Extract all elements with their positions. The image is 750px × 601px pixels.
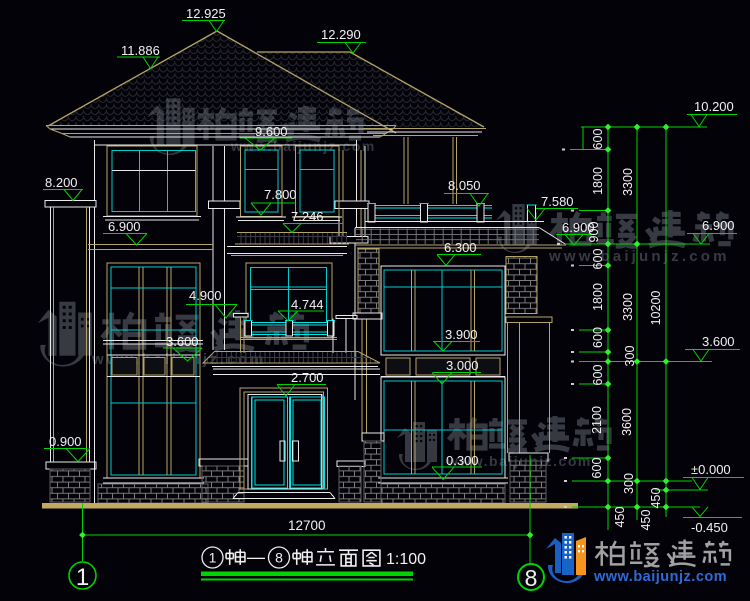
svg-text:7.580: 7.580 [541, 194, 574, 209]
svg-text:7.246: 7.246 [291, 209, 324, 224]
svg-text:600: 600 [591, 365, 605, 386]
svg-text:www.baijunjz.com: www.baijunjz.com [593, 569, 727, 585]
svg-text:1: 1 [209, 550, 217, 566]
svg-text:3300: 3300 [621, 293, 635, 321]
svg-text:600: 600 [591, 129, 605, 150]
svg-text:12.925: 12.925 [186, 6, 226, 21]
svg-text:9.600: 9.600 [255, 124, 288, 139]
svg-text:11.886: 11.886 [121, 43, 160, 58]
svg-text:3.900: 3.900 [445, 327, 478, 342]
svg-text:450: 450 [649, 488, 663, 509]
svg-text:0.900: 0.900 [49, 434, 82, 449]
svg-text:1800: 1800 [591, 167, 605, 195]
svg-text:3.600: 3.600 [702, 334, 735, 349]
svg-text:3300: 3300 [621, 168, 635, 196]
svg-text:1800: 1800 [591, 283, 605, 311]
svg-text:0.300: 0.300 [446, 453, 479, 468]
svg-text:3.600: 3.600 [166, 334, 199, 349]
svg-text:—: — [247, 547, 265, 567]
svg-text:10.200: 10.200 [694, 99, 734, 114]
svg-text:8: 8 [525, 565, 538, 591]
svg-text:450: 450 [639, 510, 653, 531]
svg-text:6.900: 6.900 [702, 218, 735, 233]
svg-text:12700: 12700 [288, 518, 326, 533]
svg-text:10200: 10200 [649, 291, 663, 326]
svg-text:900: 900 [587, 222, 601, 243]
svg-text:3.000: 3.000 [446, 358, 479, 373]
svg-text:450: 450 [613, 507, 627, 528]
svg-text:8.050: 8.050 [448, 178, 481, 193]
svg-text:8: 8 [275, 550, 283, 566]
svg-text:3600: 3600 [620, 408, 634, 436]
svg-text:6.900: 6.900 [108, 219, 141, 234]
svg-text:1:100: 1:100 [386, 551, 426, 568]
svg-text:600: 600 [590, 458, 604, 479]
svg-text:4.744: 4.744 [291, 297, 324, 312]
svg-text:±0.000: ±0.000 [691, 462, 731, 477]
svg-text:1: 1 [76, 564, 89, 591]
svg-text:www.baijunjz.com: www.baijunjz.com [548, 248, 730, 265]
svg-text:600: 600 [591, 249, 605, 270]
svg-text:300: 300 [622, 473, 636, 494]
svg-text:7.800: 7.800 [264, 187, 297, 202]
svg-text:600: 600 [591, 327, 605, 348]
svg-text:4.900: 4.900 [189, 288, 222, 303]
svg-text:300: 300 [623, 346, 637, 367]
svg-text:12.290: 12.290 [321, 27, 361, 42]
svg-text:2.700: 2.700 [291, 370, 324, 385]
svg-text:8.200: 8.200 [45, 175, 78, 190]
svg-text:2100: 2100 [590, 406, 604, 434]
svg-text:6.300: 6.300 [444, 240, 477, 255]
svg-text:-0.450: -0.450 [691, 520, 728, 535]
